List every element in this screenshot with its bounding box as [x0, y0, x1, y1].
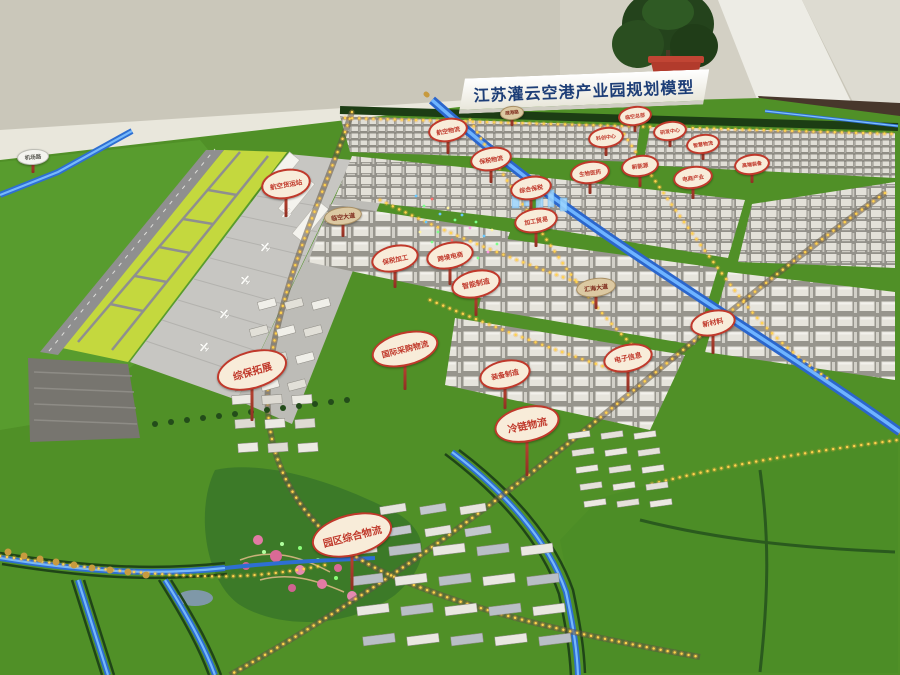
- sign-label: 保税物流: [468, 144, 514, 175]
- sign-pole: [504, 383, 507, 409]
- sign-pole: [535, 227, 538, 247]
- sign-label: 智慧物流: [685, 132, 721, 157]
- zone-sign: 航空物流: [430, 118, 466, 156]
- sign-label: 保税加工: [369, 240, 422, 276]
- sign-pole: [251, 383, 254, 421]
- sign-label: 电商产业: [672, 163, 715, 191]
- sign-label: 科创中心: [587, 124, 626, 150]
- zone-sign: 生物医药: [572, 161, 608, 196]
- zone-sign: 园区综合物流: [313, 514, 391, 592]
- sign-label: 电子信息: [601, 339, 656, 377]
- sign-pole: [712, 330, 715, 354]
- zone-sign: 跨境电商: [428, 242, 472, 287]
- sign-pole: [285, 193, 288, 217]
- sign-pole: [669, 135, 672, 147]
- sign-pole: [751, 169, 754, 183]
- sign-label: 园区综合物流: [307, 505, 397, 566]
- sign-pole: [394, 266, 397, 288]
- sign-label: 国际采购物流: [368, 324, 442, 373]
- zone-sign: 综合保税: [512, 176, 550, 214]
- zone-sign: 智能制造: [453, 270, 499, 318]
- sign-pole: [404, 360, 407, 390]
- sign-label: 冷链物流: [491, 400, 563, 449]
- zone-sign: 装备制造: [481, 360, 529, 411]
- zone-sign: 研发中心: [655, 121, 685, 149]
- sign-pole: [526, 436, 529, 476]
- sign-pole: [692, 183, 695, 199]
- sign-pole: [530, 194, 533, 212]
- sign-label: 汇海大道: [575, 275, 617, 299]
- sign-pole: [634, 120, 637, 132]
- sign-label: 综保拓展: [212, 342, 292, 398]
- sign-pole: [32, 161, 35, 173]
- sign-label: 新能源: [620, 152, 661, 179]
- sign-pole: [639, 171, 642, 187]
- zone-sign: 综保拓展: [218, 351, 286, 423]
- zone-sign: 新材料: [692, 310, 734, 356]
- zone-sign: 电商产业: [675, 166, 711, 201]
- sign-label: 跨境电商: [424, 237, 477, 273]
- sign-pole: [475, 292, 478, 316]
- sign-pole: [595, 293, 598, 309]
- sign-label: 临空总部: [617, 104, 653, 129]
- zone-sign: 冷链物流: [496, 406, 558, 478]
- sign-pole: [511, 116, 514, 126]
- sign-label: 综合保税: [508, 173, 554, 204]
- zone-sign: 国际采购物流: [373, 332, 437, 392]
- signs-layer: 航空货运站临空大道航空物流保税物流综合保税加工贸易生物医药新能源电商产业科创中心…: [0, 0, 900, 675]
- zone-sign: 保税物流: [472, 147, 510, 185]
- sign-label: 装备制造: [477, 354, 534, 393]
- zone-sign: 临空总部: [620, 106, 650, 134]
- zone-sign: 保税加工: [373, 245, 417, 290]
- sign-label: 新材料: [688, 306, 738, 341]
- road-sign: 临空大道: [325, 207, 361, 239]
- sign-label: 生物医药: [569, 158, 612, 186]
- sign-pole: [702, 148, 705, 160]
- zone-sign: 新能源: [623, 155, 657, 189]
- road-sign: 机场路: [18, 149, 48, 175]
- sign-label: 加工贸易: [512, 204, 560, 236]
- exhibition-room-photo: 江苏灌云空港产业园规划模型 航空货运站临空大道航空物流保税物流综合保税加工贸易生…: [0, 0, 900, 675]
- sign-label: 研发中心: [652, 119, 688, 144]
- zone-sign: 高端装备: [736, 154, 768, 185]
- road-sign: 疏港路: [501, 106, 523, 128]
- sign-label: 机场路: [16, 148, 49, 166]
- sign-label: 高端装备: [733, 151, 772, 177]
- road-sign: 汇海大道: [577, 278, 615, 311]
- sign-pole: [589, 178, 592, 194]
- zone-sign: 科创中心: [590, 127, 622, 158]
- sign-label: 临空大道: [323, 204, 363, 227]
- sign-label: 航空货运站: [259, 165, 313, 203]
- sign-pole: [449, 263, 452, 285]
- sign-label: 智能制造: [449, 265, 504, 303]
- sign-pole: [351, 550, 354, 590]
- sign-pole: [447, 136, 450, 154]
- sign-pole: [342, 221, 345, 237]
- sign-pole: [605, 142, 608, 156]
- sign-label: 疏港路: [499, 105, 524, 121]
- zone-sign: 加工贸易: [516, 208, 556, 249]
- sign-pole: [490, 165, 493, 183]
- sign-pole: [627, 366, 630, 392]
- zone-sign: 电子信息: [605, 344, 651, 394]
- zone-sign: 航空货运站: [263, 169, 309, 219]
- sign-label: 航空物流: [426, 115, 470, 146]
- zone-sign: 智慧物流: [688, 134, 718, 162]
